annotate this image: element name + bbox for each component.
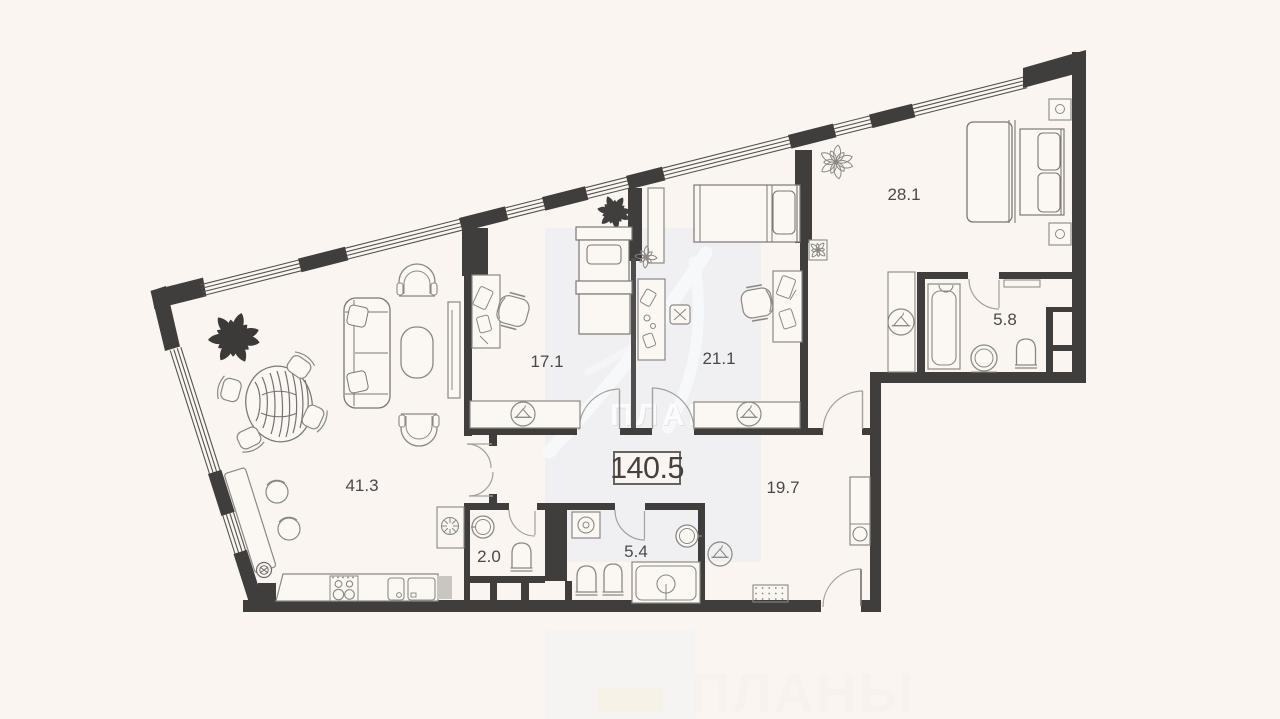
svg-text:41.3: 41.3	[345, 476, 378, 495]
svg-text:19.7: 19.7	[766, 478, 799, 497]
svg-text:ПЛАНЫ: ПЛАНЫ	[690, 661, 915, 719]
svg-text:17.1: 17.1	[530, 352, 563, 371]
svg-text:21.1: 21.1	[702, 349, 735, 368]
svg-text:5.8: 5.8	[993, 310, 1017, 329]
svg-text:5.4: 5.4	[624, 542, 648, 561]
svg-text:140.5: 140.5	[610, 451, 684, 485]
svg-text:28.1: 28.1	[887, 185, 920, 204]
svg-text:2.0: 2.0	[477, 547, 501, 566]
